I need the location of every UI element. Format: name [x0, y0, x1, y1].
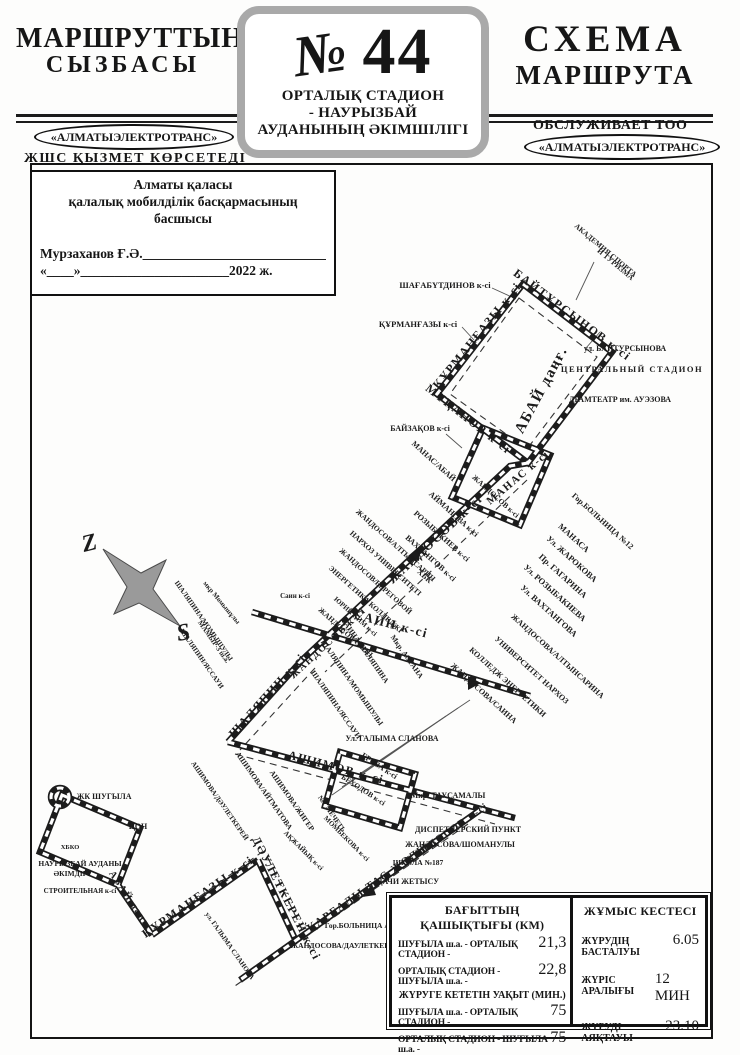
approval-box: Алматы қаласы қалалық мобилділік басқарм…	[30, 170, 336, 296]
approval-signatory: Мурзаханов Ғ.Ә._________________________…	[40, 246, 326, 262]
table-row: ОРТАЛЫҚ СТАДИОН - ШУҒЫЛА ш.а. - 75	[398, 1029, 566, 1055]
schedule-row-value: 23.10	[665, 1018, 699, 1035]
approval-date-line: «____»______________________2022 ж.	[40, 263, 326, 279]
page-title-ru-line2: МАРШРУТА	[498, 61, 712, 91]
distance-row-label: ШУҒЫЛА ш.а. - ОРТАЛЫҚ СТАДИОН -	[398, 940, 538, 960]
schedule-table: ЖҰМЫС КЕСТЕСІ ЖҮРУДІҢ БАСТАЛУЫ 6.05 ЖҮРІ…	[573, 898, 705, 1024]
route-name-line1: ОРТАЛЫҚ СТАДИОН	[245, 88, 481, 105]
page-title-ru: СХЕМА МАРШРУТА	[498, 20, 712, 90]
distance-row-label: ОРТАЛЫҚ СТАДИОН - ШУҒЫЛА ш.а. -	[398, 967, 538, 987]
table-row: ЖҮРІС АРАЛЫҒЫ 12 МИН	[581, 971, 699, 1005]
route-name-line3: АУДАНЫНЫҢ ӘКІМШІЛІГІ	[245, 122, 481, 139]
table-row: ШУҒЫЛА ш.а. - ОРТАЛЫҚ СТАДИОН - 21,3	[398, 934, 566, 960]
time-row-label: ОРТАЛЫҚ СТАДИОН - ШУҒЫЛА ш.а. -	[398, 1035, 550, 1055]
page-title-kk-line1: МАРШРУТТЫҢ	[16, 24, 230, 53]
info-tables-inner: БАҒЫТТЫҢ ҚАШЫҚТЫҒЫ (КМ) ШУҒЫЛА ш.а. - ОР…	[389, 895, 708, 1027]
header-rule-left	[16, 114, 237, 123]
operator-oval-ru: «АЛМАТЫЭЛЕКТРОТРАНС»	[524, 134, 720, 160]
route-number-badge: № 44 ОРТАЛЫҚ СТАДИОН - НАУРЫЗБАЙ АУДАНЫН…	[237, 6, 489, 158]
route-schema-page: { "header": { "title_left_line1": "МАРШР…	[0, 0, 740, 1051]
route-number-row: № 44	[245, 14, 481, 88]
numero-sign: №	[289, 17, 351, 91]
schedule-row-value: 6.05	[673, 932, 699, 949]
approval-line1: Алматы қаласы	[40, 177, 326, 194]
time-row-label: ШУҒЫЛА ш.а. - ОРТАЛЫҚ СТАДИОН -	[398, 1008, 550, 1028]
route-name: ОРТАЛЫҚ СТАДИОН - НАУРЫЗБАЙ АУДАНЫНЫҢ ӘК…	[245, 88, 481, 138]
table-row: ЖҮРУДІ АЯҚТАУЫ 23.10	[581, 1018, 699, 1044]
schedule-row-label: ЖҮРУДІҢ БАСТАЛУЫ	[581, 936, 672, 958]
page-title-kk: МАРШРУТТЫҢ СЫЗБАСЫ	[16, 24, 230, 79]
travel-time-subtitle: ЖҮРУГЕ КЕТЕТІН УАҚЫТ (МИН.)	[398, 990, 566, 1001]
distance-row-value: 22,8	[538, 961, 566, 979]
distance-row-value: 21,3	[538, 934, 566, 952]
schedule-row-label: ЖҮРУДІ АЯҚТАУЫ	[581, 1022, 665, 1044]
table-row: ОРТАЛЫҚ СТАДИОН - ШУҒЫЛА ш.а. - 22,8	[398, 961, 566, 987]
operator-caption-ru: ОБСЛУЖИВАЕТ ТОО	[533, 118, 687, 134]
info-tables: БАҒЫТТЫҢ ҚАШЫҚТЫҒЫ (КМ) ШУҒЫЛА ш.а. - ОР…	[386, 892, 711, 1030]
schedule-table-title: ЖҰМЫС КЕСТЕСІ	[581, 904, 699, 919]
route-name-line2: - НАУРЫЗБАЙ	[245, 105, 481, 122]
time-row-value: 75	[550, 1002, 566, 1020]
schedule-row-label: ЖҮРІС АРАЛЫҒЫ	[581, 975, 654, 997]
approval-line2: қалалық мобилділік басқармасының басшысы	[40, 194, 326, 228]
table-row: ШУҒЫЛА ш.а. - ОРТАЛЫҚ СТАДИОН - 75	[398, 1002, 566, 1028]
table-row: ЖҮРУДІҢ БАСТАЛУЫ 6.05	[581, 932, 699, 958]
route-number: 44	[363, 14, 433, 90]
time-row-value: 75	[550, 1029, 566, 1047]
operator-oval-kk: «АЛМАТЫЭЛЕКТРОТРАНС»	[34, 124, 234, 150]
page-title-kk-line2: СЫЗБАСЫ	[16, 53, 230, 78]
schedule-row-value: 12 МИН	[655, 971, 699, 1005]
page-title-ru-line1: СХЕМА	[498, 20, 712, 61]
distance-table: БАҒЫТТЫҢ ҚАШЫҚТЫҒЫ (КМ) ШУҒЫЛА ш.а. - ОР…	[392, 898, 570, 1024]
distance-table-title: БАҒЫТТЫҢ ҚАШЫҚТЫҒЫ (КМ)	[398, 903, 566, 933]
